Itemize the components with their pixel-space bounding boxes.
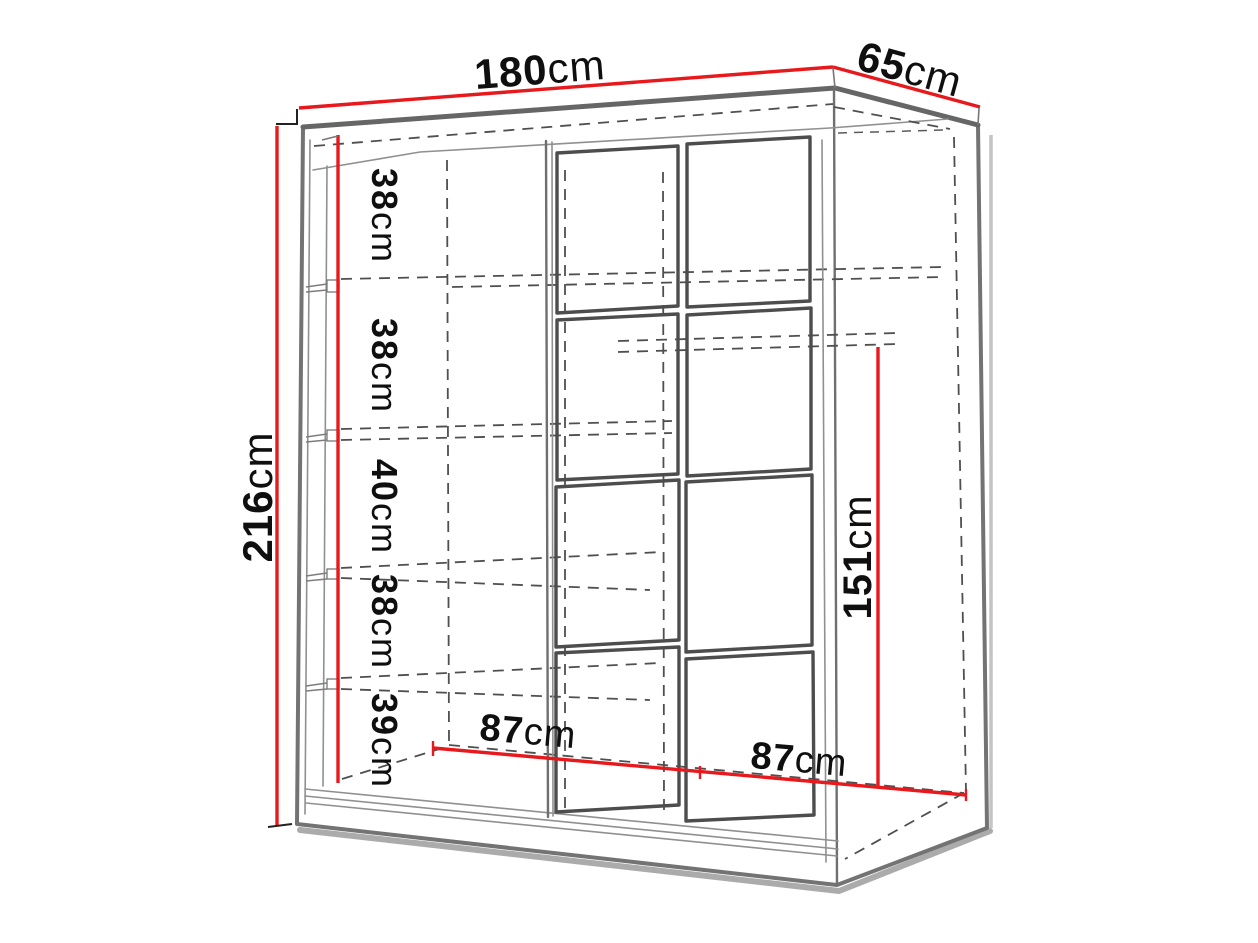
extension-tick xyxy=(978,108,979,125)
label-shelf-40cm: 40cm xyxy=(364,459,405,555)
label-door-87cm-left: 87cm xyxy=(478,707,578,757)
extension-tick xyxy=(268,824,292,827)
label-shelf-38cm-3: 38cm xyxy=(364,574,405,670)
label-shelf-39cm: 39cm xyxy=(364,693,405,789)
extension-tick xyxy=(833,68,835,88)
label-shelf-38cm-1: 38cm xyxy=(364,168,405,264)
wardrobe-dimension-diagram: 180cm 65cm 216cm 38cm 38cm 40cm 38cm 39c… xyxy=(0,0,1258,943)
label-door-87cm-right: 87cm xyxy=(749,735,849,785)
label-width-180cm: 180cm xyxy=(473,41,607,98)
label-height-216cm: 216cm xyxy=(234,431,281,562)
label-hanging-151cm: 151cm xyxy=(836,494,880,619)
diagram-canvas: 180cm 65cm 216cm 38cm 38cm 40cm 38cm 39c… xyxy=(0,0,1258,943)
label-shelf-38cm-2: 38cm xyxy=(364,318,405,414)
